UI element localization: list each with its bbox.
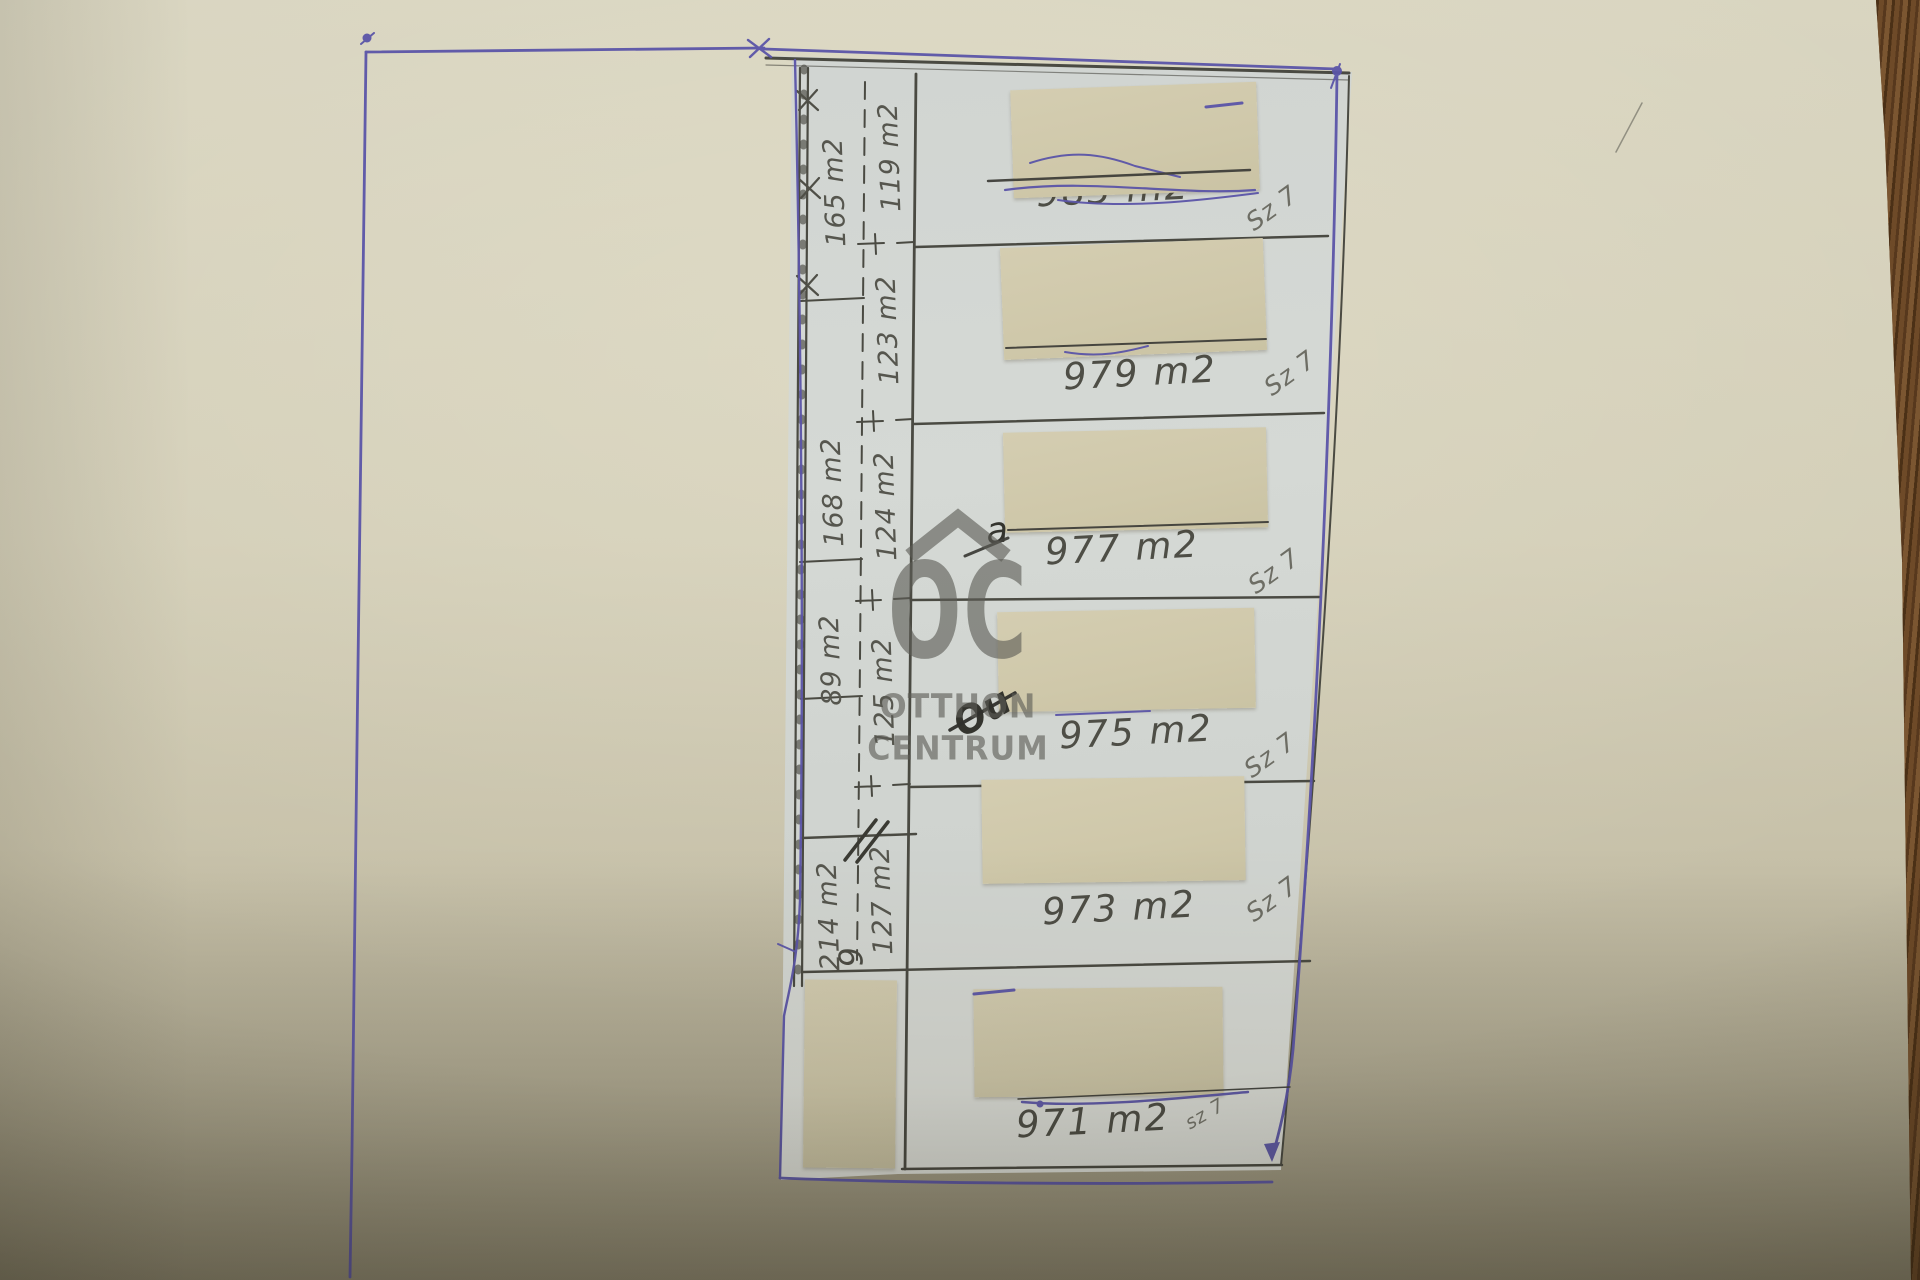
photo-of-parcel-plan: 165 m2 168 m2 89 m2 214 m2 119 m2 123 m2… [0, 0, 1920, 1280]
pen-linework [0, 0, 1920, 1280]
